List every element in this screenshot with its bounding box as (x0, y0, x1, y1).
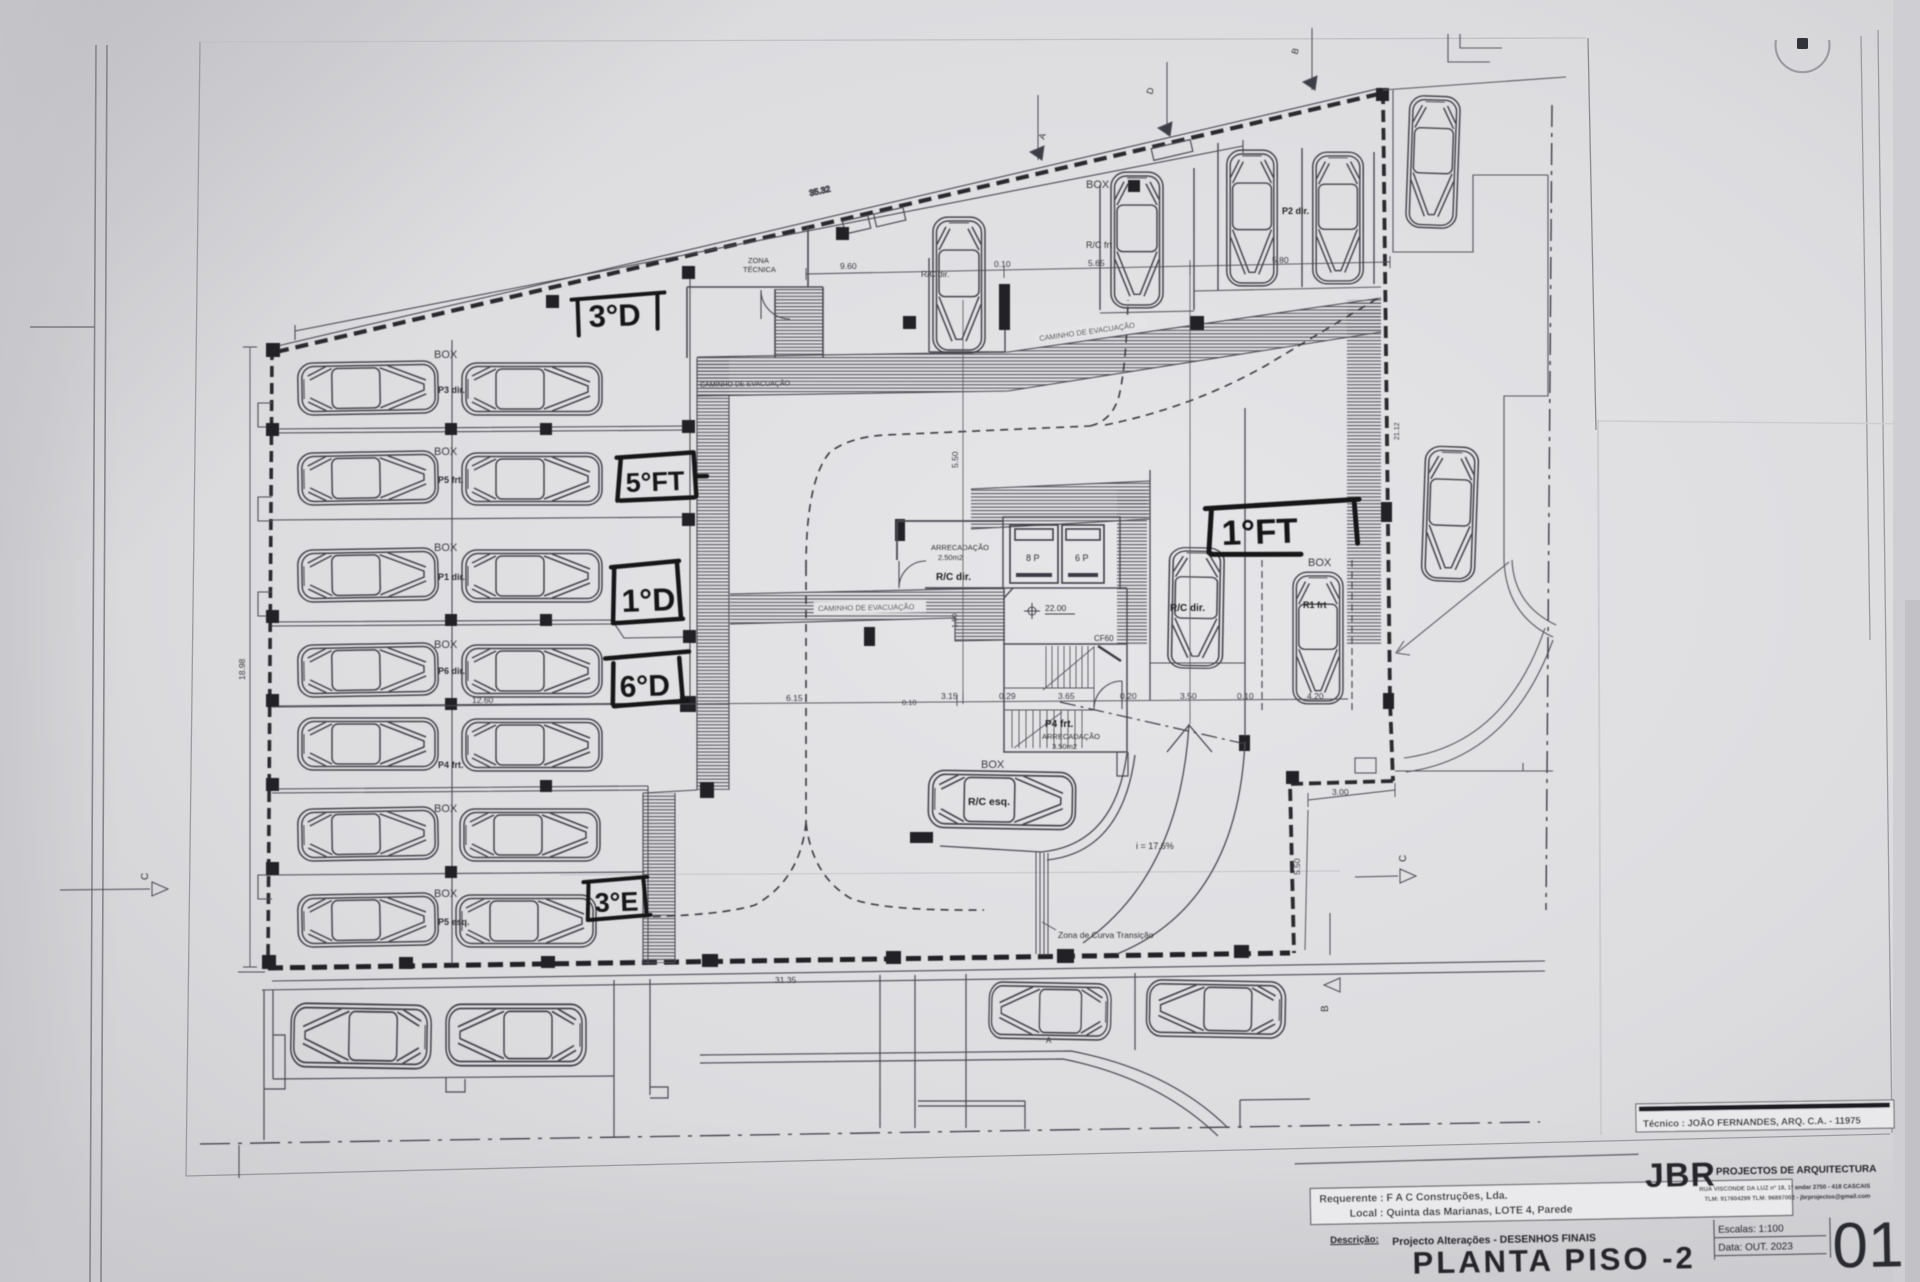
svg-text:Data: OUT. 2023: Data: OUT. 2023 (1718, 1241, 1793, 1253)
svg-text:18.98: 18.98 (237, 658, 247, 680)
svg-text:4.20: 4.20 (1307, 691, 1324, 701)
svg-text:P4 frt.: P4 frt. (1045, 719, 1074, 730)
svg-text:5.50: 5.50 (950, 451, 960, 468)
svg-text:BOX: BOX (434, 542, 458, 554)
svg-text:0.10: 0.10 (1237, 691, 1254, 701)
svg-text:01: 01 (1832, 1208, 1905, 1281)
svg-text:1°FT: 1°FT (1221, 511, 1299, 553)
svg-text:3.15: 3.15 (941, 691, 958, 701)
svg-text:BOX: BOX (434, 888, 458, 900)
svg-text:i = 17.6%: i = 17.6% (1136, 841, 1174, 851)
svg-text:BOX: BOX (434, 639, 458, 651)
svg-text:R/C dir.: R/C dir. (921, 269, 949, 279)
svg-text:3°D: 3°D (588, 297, 641, 334)
svg-text:3.50: 3.50 (1180, 691, 1197, 701)
svg-text:R1 frt: R1 frt (1303, 600, 1327, 610)
svg-text:P5 esq.: P5 esq. (438, 917, 470, 927)
svg-text:Escalas: 1:100: Escalas: 1:100 (1718, 1223, 1784, 1235)
svg-text:R/C dir.: R/C dir. (1170, 603, 1205, 614)
svg-text:R/C dir.: R/C dir. (936, 572, 971, 583)
svg-text:P3 dir.: P3 dir. (438, 385, 465, 395)
svg-text:BOX: BOX (1308, 557, 1332, 569)
svg-text:BOX: BOX (434, 803, 458, 815)
svg-text:5.50: 5.50 (1292, 858, 1302, 875)
svg-text:3.65: 3.65 (1058, 691, 1075, 701)
svg-text:ARRECADAÇÃO: ARRECADAÇÃO (1042, 732, 1100, 741)
svg-text:ZONA: ZONA (748, 256, 769, 265)
svg-text:P2 dir.: P2 dir. (1282, 206, 1309, 216)
svg-text:0.20: 0.20 (1120, 691, 1137, 701)
svg-text:21.12: 21.12 (1394, 422, 1401, 440)
svg-text:6 P: 6 P (1075, 553, 1089, 563)
svg-text:R/C frt: R/C frt (1086, 240, 1112, 250)
svg-text:PLANTA PISO -2: PLANTA PISO -2 (1412, 1240, 1696, 1280)
svg-text:3.00: 3.00 (1332, 787, 1349, 797)
svg-text:12.60: 12.60 (472, 695, 494, 705)
svg-text:B: B (1320, 1005, 1331, 1012)
svg-text:6°D: 6°D (619, 669, 670, 704)
svg-text:R/C esq.: R/C esq. (968, 796, 1010, 808)
svg-text:BOX: BOX (981, 759, 1005, 771)
svg-text:A: A (1046, 1036, 1052, 1045)
svg-text:5.65: 5.65 (1088, 258, 1105, 268)
svg-text:6.15: 6.15 (786, 693, 803, 703)
svg-text:9.60: 9.60 (840, 261, 857, 271)
svg-text:CAMINHO DE EVACUAÇÃO: CAMINHO DE EVACUAÇÃO (818, 602, 915, 613)
svg-text:P1 dir.: P1 dir. (438, 572, 465, 582)
svg-text:TÉCNICA: TÉCNICA (743, 265, 776, 274)
svg-text:CF60: CF60 (1094, 634, 1114, 643)
svg-text:ARRECADAÇÃO: ARRECADAÇÃO (931, 543, 989, 552)
svg-text:22.00: 22.00 (1045, 603, 1067, 613)
svg-text:3°E: 3°E (594, 886, 639, 918)
svg-text:0.10: 0.10 (994, 259, 1011, 269)
svg-text:BOX: BOX (1086, 179, 1110, 191)
svg-text:Descrição:: Descrição: (1330, 1234, 1379, 1246)
svg-text:C: C (140, 873, 151, 880)
svg-text:1°D: 1°D (621, 581, 676, 619)
svg-text:2.50m2: 2.50m2 (938, 553, 963, 562)
svg-text:0.29: 0.29 (999, 691, 1016, 701)
svg-text:5.80: 5.80 (1272, 255, 1289, 265)
svg-text:0.10: 0.10 (902, 698, 917, 707)
svg-text:Zona de Curva Transição: Zona de Curva Transição (1058, 930, 1154, 940)
svg-text:1.50: 1.50 (950, 613, 959, 628)
svg-text:C: C (1398, 855, 1409, 862)
svg-text:5°FT: 5°FT (625, 466, 685, 498)
svg-text:3.50m2: 3.50m2 (1052, 742, 1077, 751)
svg-text:BOX: BOX (434, 349, 458, 361)
svg-text:8 P: 8 P (1026, 553, 1040, 563)
svg-text:P4 frt.: P4 frt. (438, 760, 464, 770)
svg-text:31.35: 31.35 (775, 975, 797, 985)
svg-text:P6 dir.: P6 dir. (438, 666, 465, 676)
svg-text:BOX: BOX (434, 446, 458, 458)
svg-text:P5 frt.: P5 frt. (438, 475, 464, 485)
